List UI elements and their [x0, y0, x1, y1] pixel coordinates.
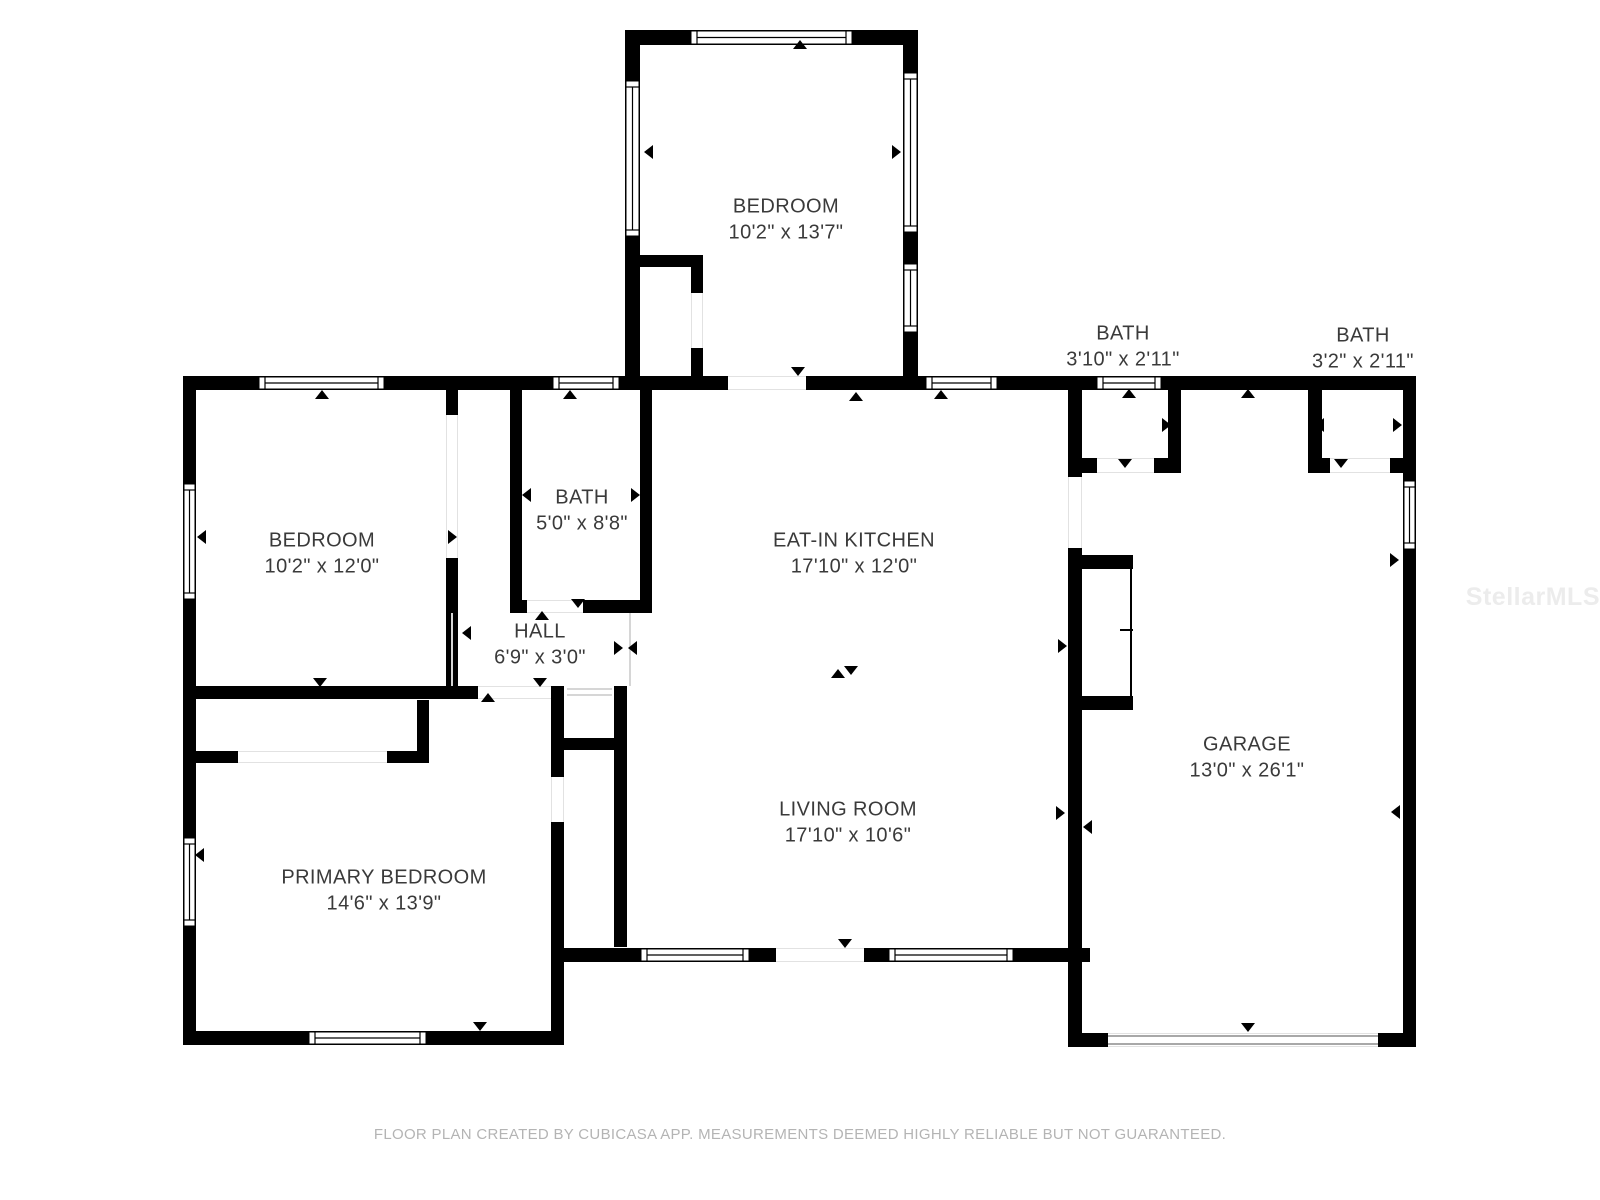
room-dimensions: 17'10" x 10'6" [785, 824, 911, 846]
wall-segment [750, 948, 776, 962]
window [903, 73, 918, 233]
room-name: GARAGE [1203, 733, 1291, 755]
opening-arrow-icon [462, 626, 471, 640]
room-dimensions: 6'9" x 3'0" [494, 646, 586, 668]
room-dimensions: 13'0" x 26'1" [1190, 759, 1305, 781]
wall-segment [1068, 548, 1082, 1047]
room-name: BATH [555, 486, 608, 508]
opening-arrow-icon [892, 145, 901, 159]
wall-segment [551, 686, 564, 777]
floor-plan-drawing: BEDROOM10'2" x 13'7"BATH3'10" x 2'11"BAT… [0, 0, 1600, 1200]
wall-segment [620, 376, 728, 390]
wall-segment [510, 600, 527, 613]
garage-fixture [1120, 562, 1133, 701]
room-dimensions: 10'2" x 13'7" [729, 221, 844, 243]
room-label-bedroom-left: BEDROOM10'2" x 12'0" [265, 529, 380, 577]
wall-segment [446, 390, 458, 415]
wall-segment [183, 1031, 308, 1045]
wall-segment [385, 376, 552, 390]
room-dimensions: 10'2" x 12'0" [265, 555, 380, 577]
window [889, 948, 1014, 962]
opening-arrow-icon [563, 390, 577, 399]
room-label-bath-hall-2: BATH3'2" x 2'11" [1312, 324, 1414, 372]
opening-arrow-icon [831, 669, 845, 678]
window [691, 30, 853, 45]
wall-segment [864, 948, 888, 962]
wall-segment [998, 376, 1096, 390]
opening-arrow-icon [934, 390, 948, 399]
room-dimensions: 5'0" x 8'8" [536, 512, 628, 534]
opening-arrow-icon [1393, 418, 1402, 432]
opening-arrow-icon [1056, 806, 1065, 820]
opening-arrow-icon [1058, 639, 1067, 653]
room-name: BATH [1096, 322, 1149, 344]
wall-segment [1068, 458, 1097, 473]
room-name: BATH [1336, 324, 1389, 346]
room-label-bath-main: BATH5'0" x 8'8" [536, 486, 628, 534]
room-name: LIVING ROOM [779, 798, 917, 820]
wall-segment [183, 600, 196, 837]
room-label-eat-in-kitchen: EAT-IN KITCHEN17'10" x 12'0" [773, 529, 935, 577]
opening-arrow-icon [1122, 389, 1136, 398]
room-dimensions: 3'10" x 2'11" [1066, 348, 1179, 370]
wall-segment [196, 686, 478, 699]
opening-arrow-icon [195, 848, 204, 862]
opening-arrow-icon [533, 678, 547, 687]
wall-segment [1082, 696, 1133, 710]
wall-segment [427, 1031, 564, 1045]
opening-arrow-icon [1241, 389, 1255, 398]
room-label-bedroom-top: BEDROOM10'2" x 13'7" [729, 195, 844, 243]
wall-segment [1068, 1033, 1108, 1047]
wall-segment [1403, 390, 1416, 480]
opening-arrow-icon [844, 666, 858, 675]
window [903, 264, 918, 333]
opening-arrow-icon [1083, 820, 1092, 834]
wall-segment [387, 751, 429, 763]
room-labels: BEDROOM10'2" x 13'7"BATH3'10" x 2'11"BAT… [265, 195, 1414, 914]
room-name: EAT-IN KITCHEN [773, 529, 935, 551]
wall-segment [510, 390, 522, 600]
window [259, 376, 385, 390]
window [1097, 376, 1162, 390]
window [183, 484, 196, 600]
room-dimensions: 14'6" x 13'9" [327, 892, 442, 914]
opening-arrow-icon [1390, 553, 1399, 567]
wall-segment [691, 255, 703, 293]
opening-arrow-icon [197, 530, 206, 544]
opening-arrow-icon [315, 390, 329, 399]
floor-plan-page: BEDROOM10'2" x 13'7"BATH3'10" x 2'11"BAT… [0, 0, 1600, 1200]
opening-arrow-icon [791, 367, 805, 376]
stellar-mls-watermark: StellarMLS [1466, 583, 1600, 612]
door-openings [238, 293, 1390, 1047]
room-name: HALL [514, 620, 566, 642]
wall-segment [1162, 376, 1416, 390]
room-label-living-room: LIVING ROOM17'10" x 10'6" [779, 798, 917, 846]
wall-segment [1082, 555, 1133, 569]
window [625, 81, 640, 237]
wall-segment [806, 376, 925, 390]
opening-arrow-icon [631, 488, 640, 502]
wall-segment [551, 822, 564, 1045]
wall-segment [183, 376, 258, 390]
room-name: PRIMARY BEDROOM [281, 866, 486, 888]
room-label-bath-hall-1: BATH3'10" x 2'11" [1066, 322, 1179, 370]
window [926, 376, 998, 390]
window [641, 948, 750, 962]
opening-arrow-icon [614, 641, 623, 655]
wall-segment [614, 686, 627, 947]
wall-segment [1378, 1033, 1416, 1047]
window [553, 376, 620, 390]
wall-segment [564, 738, 614, 750]
wall-segment [1308, 458, 1330, 473]
opening-arrow-icon [644, 145, 653, 159]
room-name: BEDROOM [733, 195, 839, 217]
wall-segment [552, 948, 640, 962]
room-label-garage: GARAGE13'0" x 26'1" [1190, 733, 1305, 781]
room-dimensions: 3'2" x 2'11" [1312, 350, 1414, 372]
wall-segment [1403, 550, 1416, 1047]
wall-segment [196, 751, 238, 763]
room-name: BEDROOM [269, 529, 375, 551]
opening-arrow-icon [1391, 805, 1400, 819]
window [1403, 481, 1416, 550]
room-label-hall: HALL6'9" x 3'0" [494, 620, 586, 668]
window [183, 838, 196, 927]
footer-disclaimer: FLOOR PLAN CREATED BY CUBICASA APP. MEAS… [0, 1126, 1600, 1143]
opening-arrow-icon [313, 678, 327, 687]
wall-segment [183, 390, 196, 483]
opening-arrow-icon [849, 392, 863, 401]
wall-segment [640, 390, 652, 611]
opening-arrow-icon [1241, 1023, 1255, 1032]
window [309, 1031, 427, 1045]
wall-segment [1154, 458, 1181, 473]
opening-arrow-icon [473, 1022, 487, 1031]
room-label-primary-bedroom: PRIMARY BEDROOM14'6" x 13'9" [281, 866, 486, 914]
wall-segment [183, 927, 196, 1045]
room-dimensions: 17'10" x 12'0" [791, 555, 917, 577]
opening-arrow-icon [838, 939, 852, 948]
opening-arrow-icon [522, 488, 531, 502]
